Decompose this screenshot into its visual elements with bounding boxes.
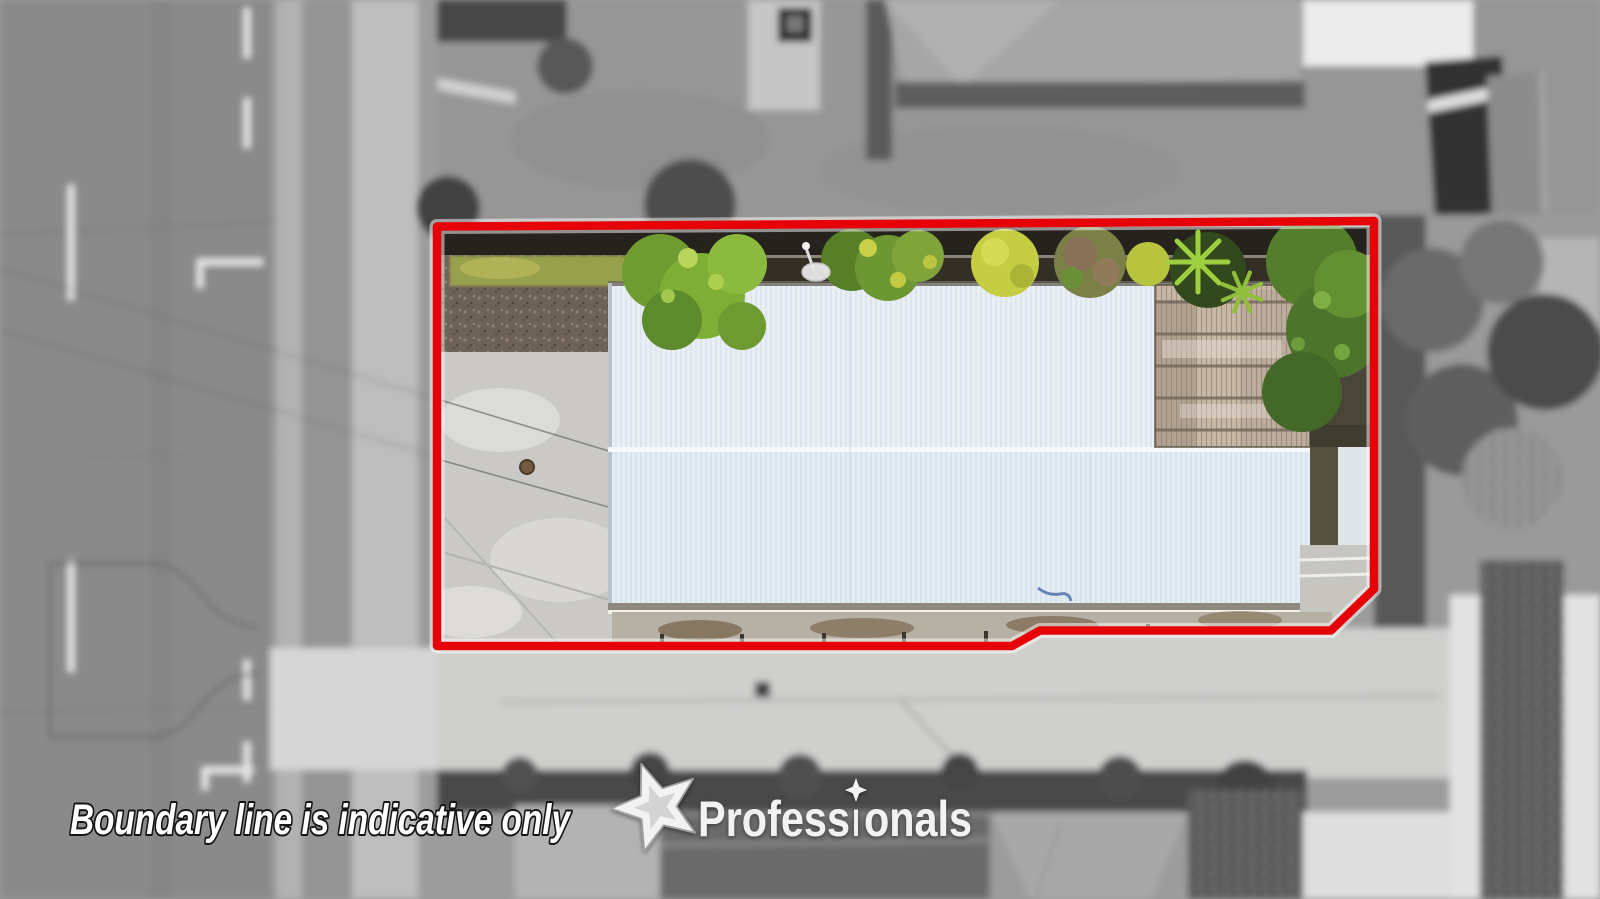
boundary-disclaimer-text: Boundary line is indicative only bbox=[70, 796, 572, 844]
street-road bbox=[0, 0, 272, 899]
aerial-property-photo: Boundary line is indicative only Profess… bbox=[0, 0, 1600, 899]
driveway-drain bbox=[520, 460, 534, 474]
neighbour-block-top bbox=[416, 0, 1600, 251]
aerial-photo-canvas: Boundary line is indicative only Profess… bbox=[0, 0, 1600, 899]
property-in-colour bbox=[418, 216, 1382, 648]
bush-yellow bbox=[971, 229, 1039, 297]
neighbour-roof-white bbox=[1303, 0, 1473, 66]
driveway-concrete bbox=[418, 338, 630, 647]
logo-text-post: onals bbox=[864, 791, 972, 847]
logo-text-pre: Profess bbox=[698, 791, 850, 847]
